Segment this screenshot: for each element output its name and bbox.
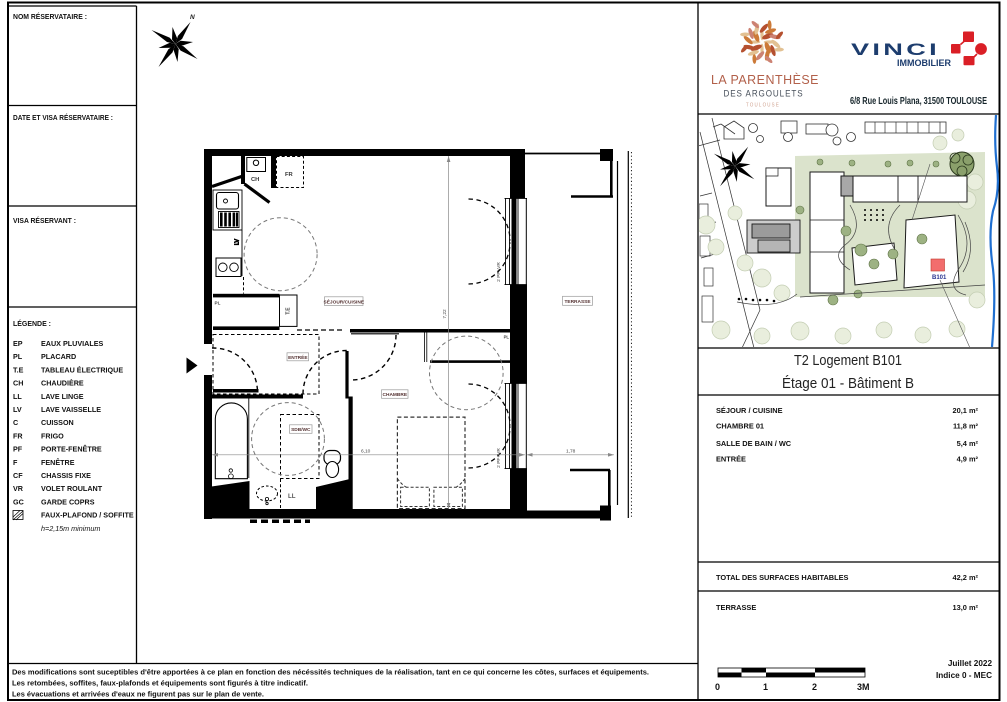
svg-text:TOTAL DES SURFACES HABITABLES: TOTAL DES SURFACES HABITABLES (716, 573, 849, 582)
svg-text:N: N (190, 14, 195, 21)
svg-text:CHAUDIÈRE: CHAUDIÈRE (41, 379, 84, 388)
svg-text:LAVE LINGE: LAVE LINGE (41, 392, 84, 401)
svg-text:PLACARD: PLACARD (41, 352, 76, 361)
svg-text:PL: PL (504, 335, 510, 340)
svg-text:2 PF+VR: 2 PF+VR (496, 262, 502, 282)
svg-text:PL: PL (13, 352, 23, 361)
svg-text:GC: GC (13, 497, 24, 506)
svg-text:NOM RÉSERVATAIRE :: NOM RÉSERVATAIRE : (13, 12, 87, 21)
svg-text:2 PF+VR: 2 PF+VR (496, 448, 502, 468)
svg-text:ENTRÉE: ENTRÉE (716, 455, 746, 464)
svg-text:CH: CH (13, 379, 23, 388)
svg-text:T2 Logement B101: T2 Logement B101 (794, 352, 902, 369)
svg-text:1,78: 1,78 (566, 449, 576, 455)
svg-text:VR: VR (13, 484, 24, 493)
svg-text:42,2 m²: 42,2 m² (953, 573, 979, 582)
svg-text:CHAMBRE 01: CHAMBRE 01 (716, 422, 764, 431)
svg-text:TERRASSE: TERRASSE (716, 603, 756, 612)
svg-text:T.E: T.E (13, 365, 24, 374)
svg-text:11,8 m²: 11,8 m² (953, 422, 979, 431)
svg-text:PL: PL (215, 301, 221, 306)
svg-text:LV: LV (235, 238, 241, 244)
svg-text:GARDE COPRS: GARDE COPRS (41, 497, 95, 506)
svg-text:0: 0 (715, 682, 720, 692)
svg-text:TERRASSE: TERRASSE (564, 299, 591, 305)
svg-text:CUISSON: CUISSON (41, 418, 74, 427)
svg-text:LAVE VAISSELLE: LAVE VAISSELLE (41, 405, 101, 414)
svg-text:SDB/WC: SDB/WC (291, 427, 311, 433)
svg-text:Les retombées, soffites, faux-: Les retombées, soffites, faux-plafonds e… (12, 679, 308, 688)
svg-text:FENÊTRE: FENÊTRE (41, 458, 75, 467)
svg-text:CH: CH (251, 177, 259, 183)
svg-text:SÉJOUR / CUISINE: SÉJOUR / CUISINE (716, 406, 783, 415)
svg-text:LA PARENTHÈSE: LA PARENTHÈSE (711, 72, 819, 87)
svg-text:Les évacuations et arrivées d': Les évacuations et arrivées d'eaux ne fi… (12, 690, 264, 699)
svg-text:1: 1 (763, 682, 768, 692)
svg-text:VISA RÉSERVANT :: VISA RÉSERVANT : (13, 216, 76, 225)
svg-text:4,9 m²: 4,9 m² (957, 455, 979, 464)
svg-text:CHASSIS FIXE: CHASSIS FIXE (41, 471, 91, 480)
svg-text:Juillet 2022: Juillet 2022 (948, 659, 993, 668)
svg-text:PORTE-FENÊTRE: PORTE-FENÊTRE (41, 445, 102, 454)
svg-text:13,0 m²: 13,0 m² (953, 603, 979, 612)
svg-text:6/8 Rue Louis Plana, 31500 TOU: 6/8 Rue Louis Plana, 31500 TOULOUSE (850, 96, 987, 107)
svg-text:F: F (13, 458, 18, 467)
svg-text:VINCI: VINCI (851, 41, 940, 59)
svg-text:5,4 m²: 5,4 m² (957, 439, 979, 448)
svg-text:EAUX PLUVIALES: EAUX PLUVIALES (41, 339, 104, 348)
svg-text:FR: FR (285, 172, 294, 178)
svg-text:20,1 m²: 20,1 m² (953, 406, 979, 415)
svg-text:CHAMBRE: CHAMBRE (383, 392, 408, 398)
svg-text:TABLEAU ÉLECTRIQUE: TABLEAU ÉLECTRIQUE (41, 365, 123, 374)
svg-text:7,22: 7,22 (442, 309, 448, 319)
svg-text:LV: LV (13, 405, 22, 414)
svg-text:LÉGENDE :: LÉGENDE : (13, 319, 51, 328)
svg-text:EP: EP (13, 339, 23, 348)
svg-text:CF: CF (13, 471, 23, 480)
svg-text:B101: B101 (932, 275, 947, 281)
svg-text:T.E: T.E (286, 307, 292, 315)
svg-text:FRIGO: FRIGO (41, 431, 64, 440)
svg-text:FR: FR (13, 431, 23, 440)
svg-text:LL: LL (288, 493, 296, 500)
svg-text:FAUX-PLAFOND / SOFFITE: FAUX-PLAFOND / SOFFITE (41, 511, 134, 520)
svg-text:TOULOUSE: TOULOUSE (746, 103, 780, 109)
svg-text:PF: PF (13, 445, 23, 454)
svg-text:6,10: 6,10 (361, 449, 371, 455)
svg-text:C: C (13, 418, 18, 427)
svg-text:SALLE DE BAIN / WC: SALLE DE BAIN / WC (716, 439, 792, 448)
svg-text:DES ARGOULETS: DES ARGOULETS (724, 89, 804, 99)
svg-text:Des modifications sont sucepti: Des modifications sont suceptibles d'êtr… (12, 668, 649, 677)
svg-text:DATE ET VISA RÉSERVATAIRE :: DATE ET VISA RÉSERVATAIRE : (13, 113, 113, 122)
svg-text:2: 2 (812, 682, 817, 692)
svg-text:VOLET ROULANT: VOLET ROULANT (41, 484, 103, 493)
svg-text:Indice 0 - MEC: Indice 0 - MEC (936, 671, 992, 680)
svg-text:h=2,15m minimum: h=2,15m minimum (41, 524, 100, 533)
svg-text:Étage 01 - Bâtiment B: Étage 01 - Bâtiment B (782, 375, 914, 392)
svg-text:LL: LL (13, 392, 22, 401)
svg-text:3M: 3M (857, 682, 870, 692)
svg-text:IMMOBILIER: IMMOBILIER (897, 58, 951, 69)
